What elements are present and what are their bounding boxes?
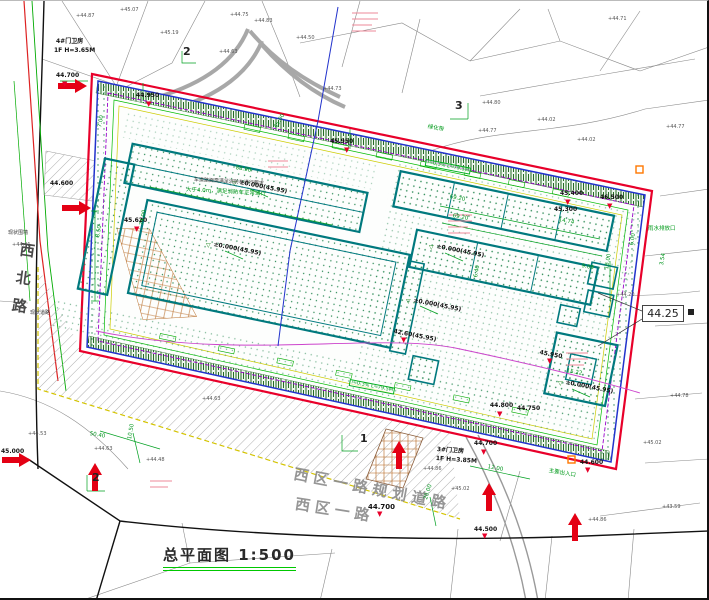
elevation-marker-icon: ▼: [481, 449, 486, 456]
section-mark: 3: [455, 100, 463, 111]
arrow-west-3: [2, 453, 31, 467]
elevation-marker-icon: ▼: [482, 533, 487, 540]
elevation-marker-icon: ▼: [585, 467, 590, 474]
spot-elevation: +44.48: [146, 458, 165, 463]
spot-elevation: +45.07: [120, 8, 139, 13]
elevation-marker-icon: ▼: [344, 147, 349, 154]
spot-elevation: +44.87: [76, 14, 95, 19]
elevation-box: 44.25: [642, 305, 684, 322]
spot-elevation: +44.73: [323, 87, 342, 92]
elevation-label: 45.000: [1, 449, 24, 455]
spot-elevation: +44.80: [482, 101, 501, 106]
gatehouse-label: 1F H=3.65M: [54, 48, 95, 54]
elevation-label: 44.750: [517, 406, 540, 412]
elevation-label: 45.950: [330, 139, 353, 145]
spot-elevation: +43.59: [662, 505, 681, 510]
spot-elevation: +44.75: [230, 13, 249, 18]
building-substation: [408, 356, 438, 385]
arrow-south-3: [482, 483, 496, 511]
elevation-label: 44.700: [474, 441, 497, 447]
elevation-label: 44.600: [50, 181, 73, 187]
note-dark: 现状道路: [30, 311, 50, 316]
section-mark: 2: [92, 472, 100, 483]
spot-elevation: +45.19: [160, 31, 179, 36]
elevation-label: 46.500: [600, 195, 623, 201]
spot-elevation: +44.02: [577, 138, 596, 143]
elevation-marker-icon: ▼: [497, 411, 502, 418]
level-marker-icon: ▽: [429, 245, 434, 251]
elevation-label: 44.950: [136, 93, 159, 99]
elevation-label: 44.800: [490, 403, 513, 409]
elevation-marker-icon: ▼: [62, 81, 67, 88]
elevation-marker-icon: ▼: [547, 358, 552, 365]
spot-elevation: +44.86: [588, 518, 607, 523]
section-mark: 2: [183, 46, 191, 57]
drawing-title: 总平面图 1:500: [163, 544, 296, 571]
spot-elevation: +44.63: [94, 447, 113, 452]
spot-elevation: +44.02: [537, 118, 556, 123]
level-marker-icon: ▽: [206, 243, 211, 249]
elevation-marker-icon: ▼: [146, 101, 151, 108]
existing-roads: [158, 29, 345, 109]
spot-elevation: +44.63: [202, 397, 221, 402]
section-mark: 1: [360, 433, 368, 444]
spot-elevation: +45.02: [451, 487, 470, 492]
site-plan-drawing: 总平面图 1:500 西区一路规划道路 西区一路 西北路 44.25 2321 …: [0, 0, 709, 600]
spot-elevation: +44.41: [12, 243, 31, 248]
gatehouse-label: 4#门卫房: [56, 39, 83, 45]
spot-elevation: +44.50: [296, 36, 315, 41]
elevation-label: 44.700: [56, 73, 79, 79]
spot-elevation: +44.78: [670, 394, 689, 399]
elevation-label: 45.300: [554, 207, 577, 213]
cooling-tower-2: [584, 290, 614, 317]
cooling-tower-3: [557, 305, 580, 327]
elevation-marker-icon: ▼: [134, 226, 139, 233]
elevation-label: 45.400: [560, 191, 583, 197]
elevation-marker-icon: ▼: [401, 337, 406, 344]
spot-elevation: +45.02: [643, 441, 662, 446]
spot-elevation: +44.20: [616, 293, 635, 298]
spot-elevation: +44.63: [219, 50, 238, 55]
level-marker-icon: ▽: [406, 299, 411, 305]
elevation-marker-icon: ▼: [607, 203, 612, 210]
spot-elevation: +44.77: [478, 129, 497, 134]
level-marker-icon: ▽: [558, 381, 563, 387]
note-green: 雨水排放口: [648, 227, 676, 233]
elevation-marker-icon: ▼: [565, 199, 570, 206]
elevation-marker-icon: ▼: [377, 511, 382, 518]
spot-elevation: +44.83: [254, 19, 273, 24]
spot-elevation: +44.71: [608, 17, 627, 22]
elevation-label: 44.600: [580, 460, 603, 466]
note-dark: 现状围墙: [8, 231, 28, 236]
spot-elevation: +44.77: [666, 125, 685, 130]
spot-elevation: +44.53: [28, 432, 47, 437]
spot-elevation: +44.86: [423, 467, 442, 472]
